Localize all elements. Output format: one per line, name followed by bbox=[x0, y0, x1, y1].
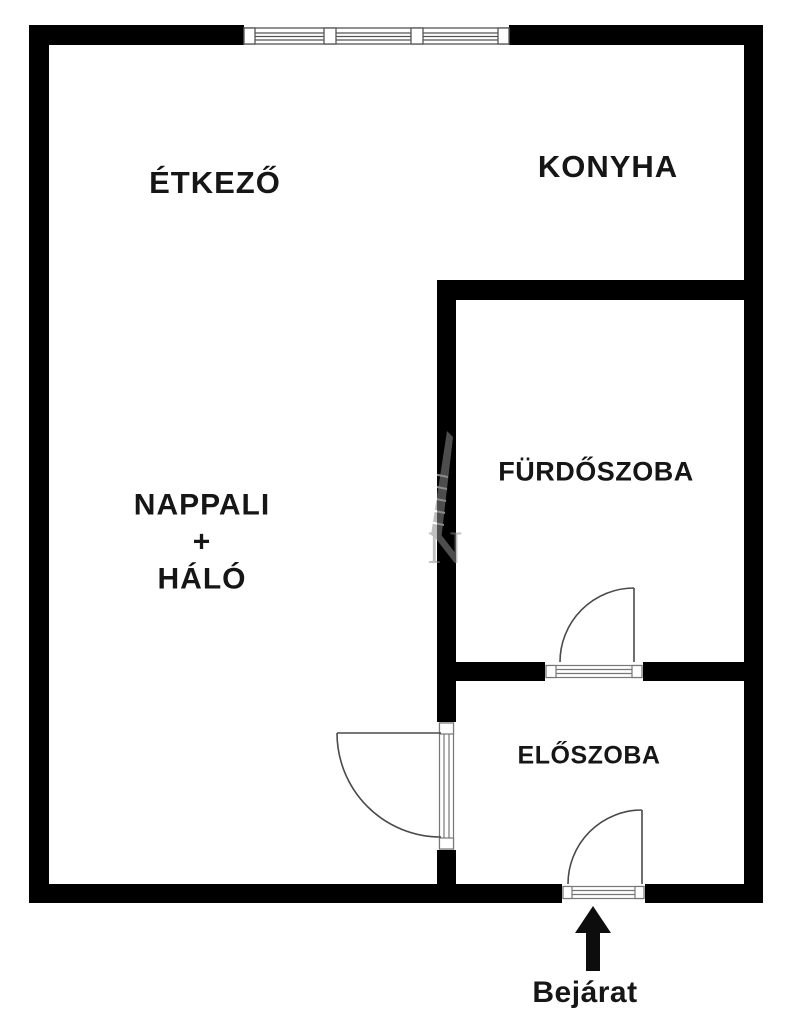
wall-bathroom-hallway-right bbox=[643, 662, 763, 681]
bathroom-door-swing-icon bbox=[560, 588, 634, 662]
window-end-cap-right bbox=[498, 28, 509, 44]
room-label-living-line2: + bbox=[134, 524, 270, 561]
wall-living-divider-lower bbox=[437, 850, 456, 903]
door-swings bbox=[337, 588, 642, 884]
window-icon bbox=[244, 28, 509, 44]
floor-plan: N ÉTKEZŐ KONYHA NAPPALI + HÁLÓ FÜRDŐSZOB… bbox=[0, 0, 792, 1024]
room-label-living-line3: HÁLÓ bbox=[134, 561, 270, 598]
interior-walls bbox=[437, 280, 763, 903]
entrance-arrow-up-icon bbox=[575, 906, 611, 971]
living-door-sill bbox=[440, 723, 454, 849]
wall-top-right bbox=[509, 25, 763, 45]
wall-right bbox=[744, 25, 763, 903]
bathroom-door-sill bbox=[546, 666, 642, 678]
room-label-hallway: ELŐSZOBA bbox=[518, 742, 661, 771]
living-door-swing-icon bbox=[337, 733, 441, 837]
wall-kitchen-bathroom-divider bbox=[437, 280, 763, 300]
window-end-cap-left bbox=[244, 28, 255, 44]
watermark-letter: N bbox=[428, 522, 462, 574]
wall-left bbox=[29, 25, 49, 903]
wall-bottom-right bbox=[645, 884, 763, 903]
entrance-door-sill bbox=[563, 887, 644, 899]
entrance-door-swing-icon bbox=[568, 810, 642, 884]
wall-top-left bbox=[29, 25, 244, 45]
door-sills bbox=[440, 666, 645, 899]
watermark: N bbox=[428, 431, 462, 574]
window-mullion bbox=[324, 28, 336, 44]
room-label-living-line1: NAPPALI bbox=[134, 487, 270, 524]
room-label-dining: ÉTKEZŐ bbox=[149, 165, 281, 201]
room-label-bathroom: FÜRDŐSZOBA bbox=[498, 457, 694, 488]
entrance-label: Bejárat bbox=[532, 976, 637, 1010]
room-label-kitchen: KONYHA bbox=[538, 149, 678, 185]
wall-bathroom-hallway-left bbox=[437, 662, 545, 681]
wall-bottom-left bbox=[29, 884, 562, 903]
window-mullion bbox=[411, 28, 423, 44]
room-label-living: NAPPALI + HÁLÓ bbox=[134, 487, 270, 598]
